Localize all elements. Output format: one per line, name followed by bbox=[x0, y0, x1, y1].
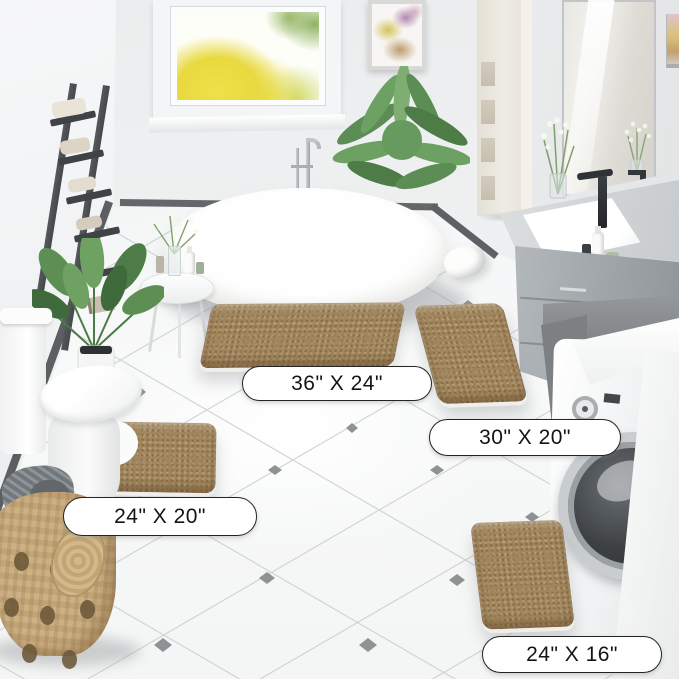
toilet-tank-lid bbox=[0, 308, 52, 324]
basket-dot bbox=[14, 552, 29, 571]
size-label-text: 24" X 20" bbox=[114, 505, 206, 529]
linen-shelf-slot bbox=[481, 176, 495, 200]
bath-rug-24x16 bbox=[470, 520, 575, 630]
faucet-body bbox=[598, 176, 607, 228]
lotion-bottle-pump bbox=[187, 246, 192, 253]
bath-rug-36x24 bbox=[199, 302, 406, 368]
basket-dot bbox=[22, 644, 37, 663]
basket-dot bbox=[4, 598, 19, 617]
counter-flower-vase bbox=[536, 112, 580, 200]
window-view-trees bbox=[177, 12, 319, 100]
toilet-plant bbox=[32, 238, 164, 378]
washer-knob-dot bbox=[582, 406, 588, 412]
glass-vase bbox=[168, 246, 181, 276]
lotion-bottle bbox=[184, 252, 195, 274]
framed-wall-art bbox=[368, 0, 426, 70]
size-label-24x20: 24" X 20" bbox=[63, 497, 257, 536]
basket-dot bbox=[40, 606, 55, 625]
bathroom-product-photo: 36" X 24" 30" X 20" 24" X 20" 24" X 16" bbox=[0, 0, 679, 679]
toilet-tank bbox=[0, 314, 46, 454]
mirror-reflected-flowers bbox=[618, 114, 656, 176]
washer-display bbox=[604, 393, 621, 404]
size-label-text: 36" X 24" bbox=[291, 372, 383, 396]
linen-cabinet-side bbox=[521, 0, 532, 212]
linen-shelf-slot bbox=[481, 138, 495, 162]
soap-pump-top bbox=[595, 226, 601, 234]
basket-dot bbox=[80, 600, 95, 619]
linen-shelf-slot bbox=[481, 62, 495, 86]
size-label-text: 24" X 16" bbox=[526, 643, 618, 667]
table-leg bbox=[178, 302, 181, 358]
tub-faucet-handle bbox=[291, 165, 313, 168]
size-label-24x16: 24" X 16" bbox=[482, 636, 662, 673]
size-label-36x24: 36" X 24" bbox=[242, 366, 432, 401]
right-edge-art bbox=[666, 14, 679, 68]
window bbox=[153, 0, 341, 120]
basket-dot bbox=[62, 650, 77, 669]
size-label-text: 30" X 20" bbox=[479, 426, 571, 450]
small-jar bbox=[196, 262, 204, 274]
palm-plant bbox=[330, 66, 470, 211]
size-label-30x20: 30" X 20" bbox=[429, 419, 621, 456]
linen-shelf-slot bbox=[481, 100, 495, 124]
